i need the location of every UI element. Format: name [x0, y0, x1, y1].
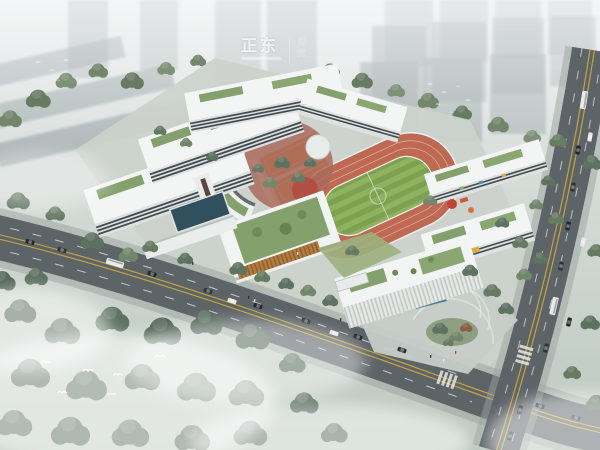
round-pavilion [306, 135, 330, 159]
watermark-brand: 正东 [241, 38, 281, 54]
rendering-canvas [0, 0, 600, 450]
watermark-subtext-illegible [241, 57, 281, 60]
aerial-rendering-school-campus: 正东 视觉 [0, 0, 600, 450]
watermark: 正东 视觉 [241, 38, 281, 60]
watermark-side-label: 视觉 [289, 37, 307, 64]
